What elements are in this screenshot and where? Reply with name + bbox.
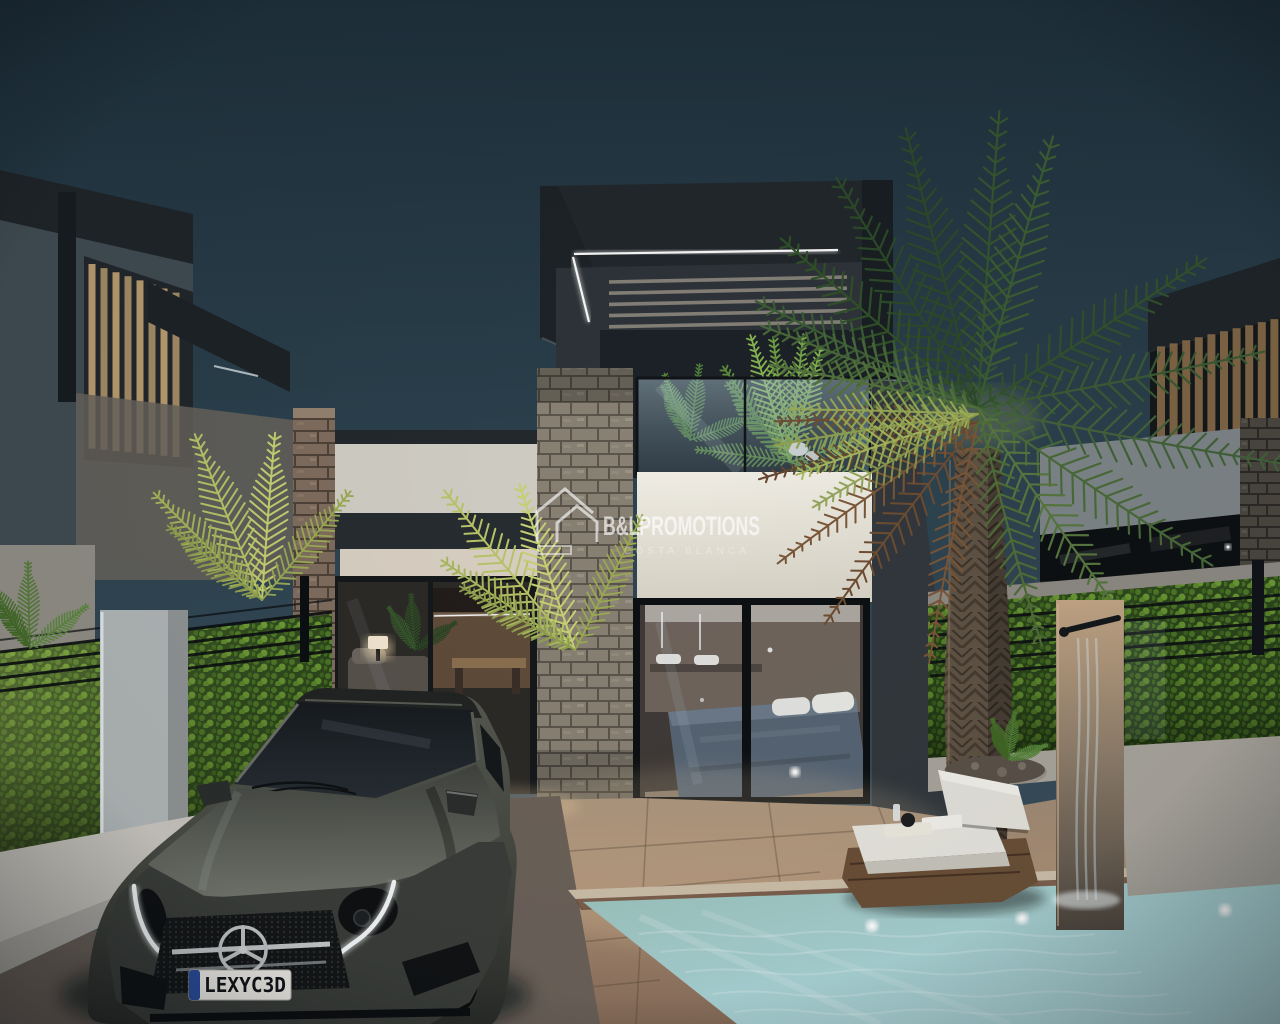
vignette-overlay bbox=[0, 0, 1280, 1024]
villa-night-render: LEXYC3D B&LPROMOTIONS COSTA BLANCA bbox=[0, 0, 1280, 1024]
render-image: LEXYC3D B&LPROMOTIONS COSTA BLANCA bbox=[0, 0, 1280, 1024]
